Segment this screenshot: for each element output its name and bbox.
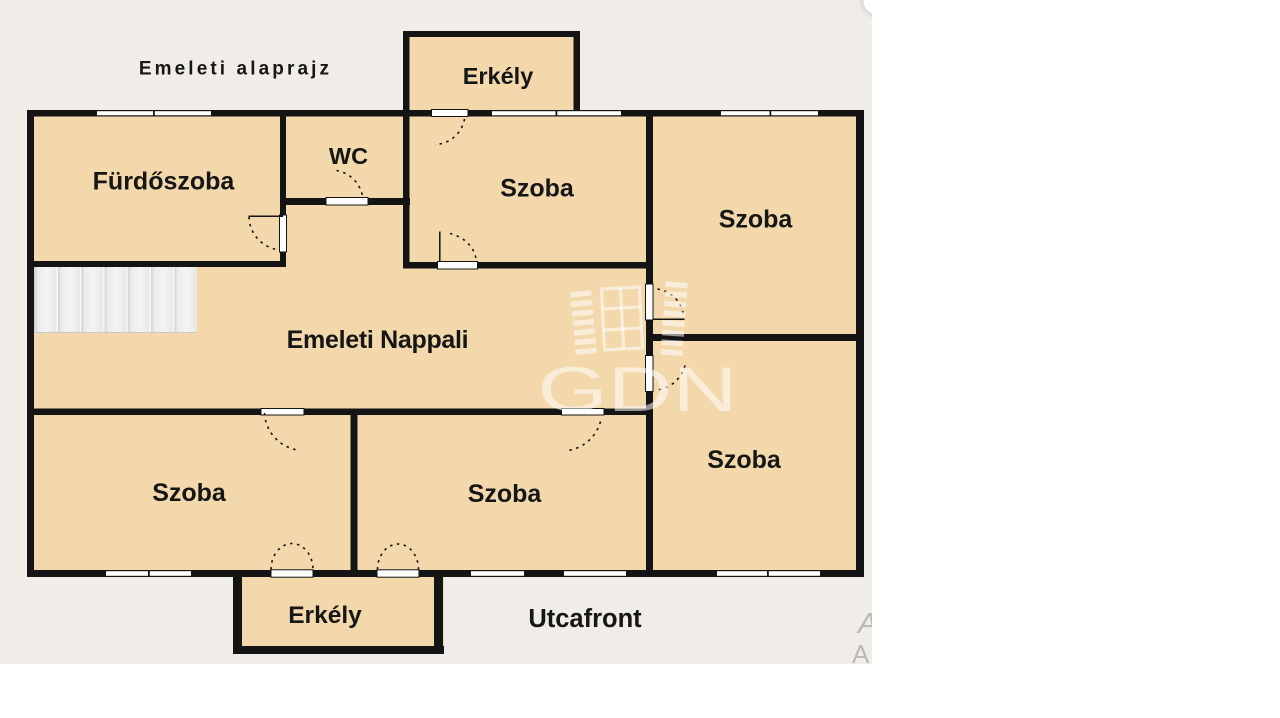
svg-text:Szoba: Szoba <box>152 479 227 507</box>
svg-text:Emeleti Nappali: Emeleti Nappali <box>287 326 469 354</box>
svg-text:Erkély: Erkély <box>288 602 362 629</box>
svg-text:Erkély: Erkély <box>463 63 534 89</box>
svg-text:Szoba: Szoba <box>707 446 782 474</box>
svg-text:GDN: GDN <box>538 355 738 425</box>
svg-text:Utcafront: Utcafront <box>528 605 642 633</box>
svg-text:Szoba: Szoba <box>500 175 575 203</box>
svg-text:WC: WC <box>329 143 368 169</box>
svg-text:Szoba: Szoba <box>719 206 794 234</box>
svg-text:Emeleti alaprajz: Emeleti alaprajz <box>139 59 332 80</box>
svg-text:Fürdőszoba: Fürdőszoba <box>93 168 236 196</box>
svg-text:Szoba: Szoba <box>468 480 543 508</box>
